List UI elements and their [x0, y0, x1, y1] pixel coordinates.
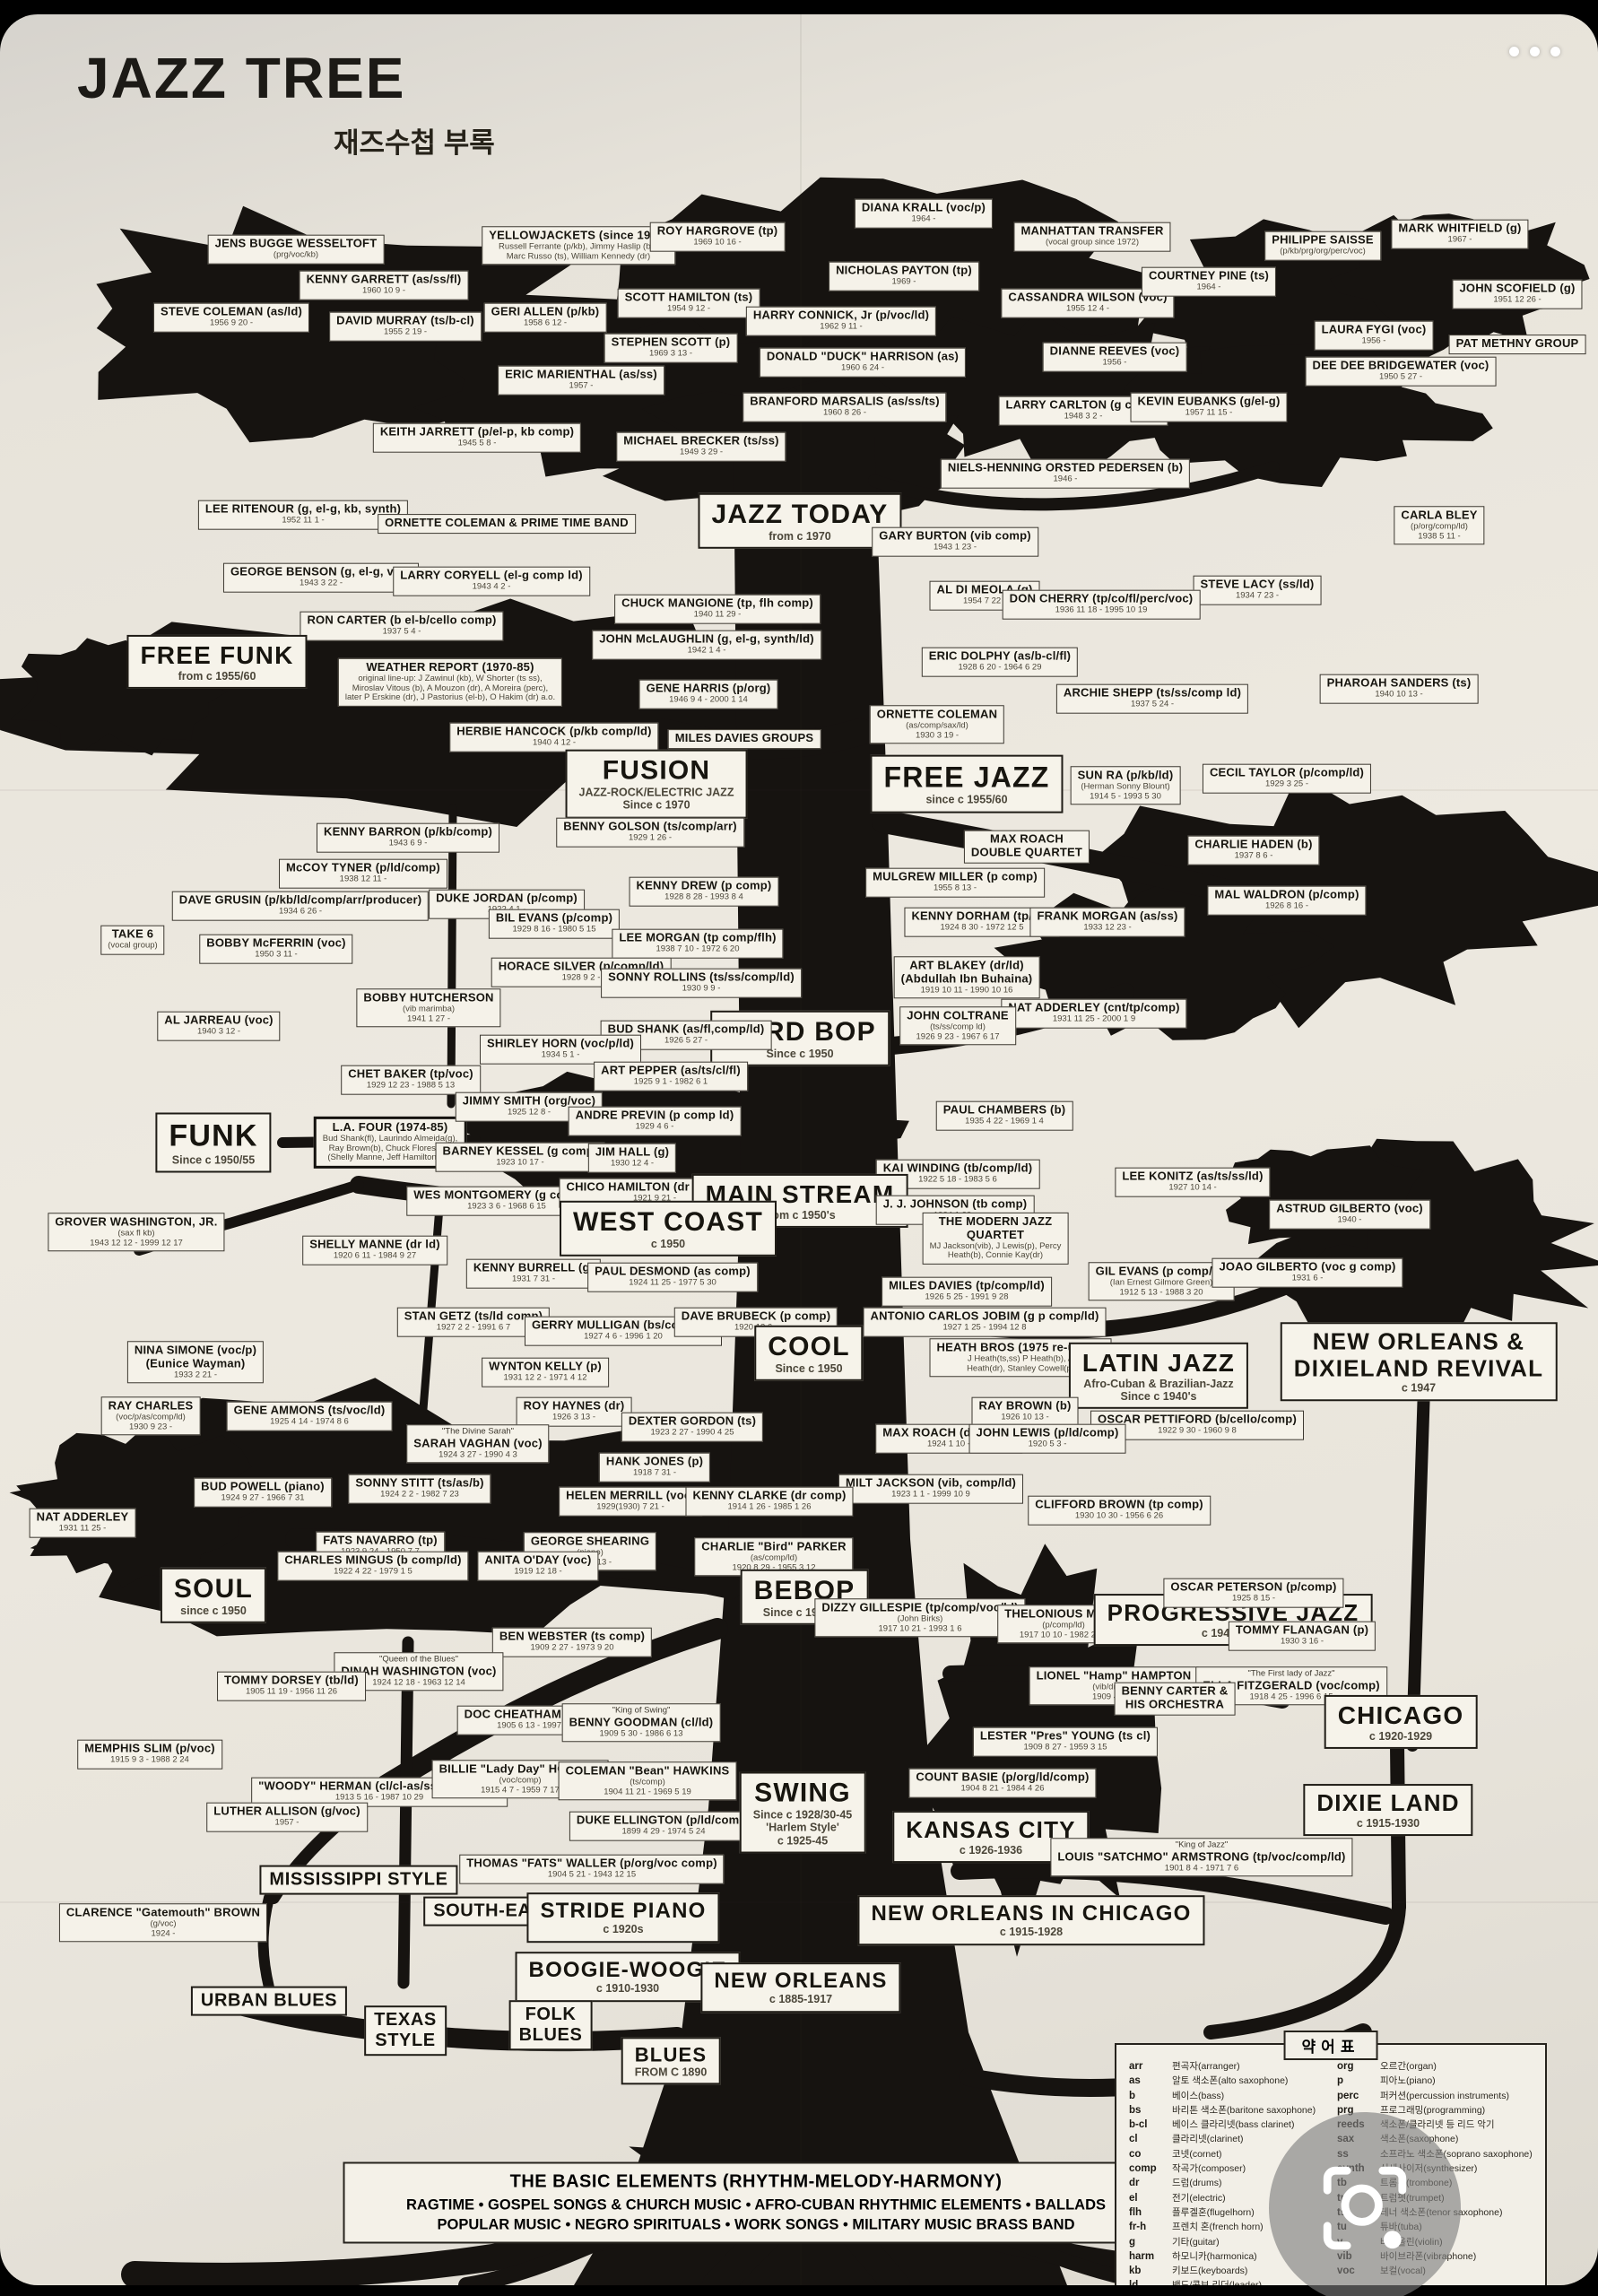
legend-row: p피아노(piano) [1337, 2074, 1533, 2088]
artist-label: PHILIPPE SAISSE(p/kb/prg/org/perc/voc) [1264, 231, 1381, 261]
lens-search-icon [1316, 2159, 1414, 2257]
artist-label: ANDRE PREVIN (p comp ld)1929 4 6 - [569, 1107, 742, 1136]
artist-label: DEXTER GORDON (ts)1923 2 27 - 1990 4 25 [621, 1413, 763, 1442]
artist-label: AL JARREAU (voc)1940 3 12 - [157, 1012, 280, 1041]
poster-photo: JAZZ TREE 재즈수첩 부록 JENS BUGGE WESSELTOFT(… [0, 14, 1598, 2285]
artist-label: PAT METHNY GROUP [1449, 335, 1586, 354]
artist-label: HELEN MERRILL (voc)1929(1930) 7 21 - [559, 1487, 702, 1517]
style-label: LATIN JAZZAfro-Cuban & Brazilian-JazzSin… [1069, 1343, 1248, 1409]
poster-stage: JAZZ TREE 재즈수첩 부록 JENS BUGGE WESSELTOFT(… [0, 14, 1598, 2285]
style-label: URBAN BLUES [191, 1987, 347, 2016]
artist-label: OSCAR PETERSON (p/comp)1925 8 15 - [1163, 1578, 1343, 1608]
artist-label: ANTONIO CARLOS JOBIM (g p comp/ld)1927 1… [864, 1308, 1107, 1337]
legend-row: org오르간(organ) [1337, 2059, 1533, 2074]
style-label: FUSIONJAZZ-ROCK/ELECTRIC JAZZSince c 197… [566, 750, 748, 819]
artist-label: ANITA O'DAY (voc)1919 12 18 - [477, 1552, 598, 1581]
artist-label: LARRY CORYELL (el-g comp ld)1943 4 2 - [393, 567, 590, 596]
artist-label: DONALD "DUCK" HARRISON (as)1960 6 24 - [760, 348, 966, 378]
artist-label: KENNY DREW (p comp)1928 8 28 - 1993 8 4 [630, 877, 779, 907]
artist-label: COURTNEY PINE (ts)1964 - [1142, 267, 1276, 297]
style-label: CHICAGOc 1920-1929 [1324, 1695, 1478, 1749]
app-screen: JAZZ TREE 재즈수첩 부록 JENS BUGGE WESSELTOFT(… [0, 0, 1598, 2296]
artist-label: CECIL TAYLOR (p/comp/ld)1929 3 25 - [1203, 764, 1371, 794]
artist-label: GROVER WASHINGTON, JR.(sax fl kb)1943 12… [48, 1213, 224, 1251]
artist-label: MICHAEL BRECKER (ts/ss)1949 3 29 - [616, 432, 786, 462]
artist-label: LUTHER ALLISON (g/voc)1957 - [206, 1803, 368, 1832]
artist-label: FRANK MORGAN (as/ss)1933 12 23 - [1029, 908, 1185, 937]
style-label: NEW ORLEANSc 1885-1917 [700, 1962, 900, 2013]
artist-label: GEORGE BENSON (g, el-g, voc)1943 3 22 - [223, 563, 419, 593]
artist-label: McCOY TYNER (p/ld/comp)1938 12 11 - [279, 859, 447, 889]
artist-label: MEMPHIS SLIM (p/voc)1915 9 3 - 1988 2 24 [77, 1740, 222, 1770]
style-label: FREE JAZZsince c 1955/60 [870, 755, 1063, 813]
style-label: FOLKBLUES [509, 2000, 593, 2050]
artist-label: RON CARTER (b el-b/cello comp)1937 5 4 - [300, 612, 503, 641]
artist-label: CARLA BLEY(p/org/comp/ld)1938 5 11 - [1394, 506, 1484, 544]
style-label: SOULsince c 1950 [161, 1568, 266, 1623]
style-label: TEXASSTYLE [364, 2005, 447, 2056]
artist-label: LEE KONITZ (as/ts/ss/ld)1927 10 14 - [1115, 1168, 1270, 1197]
artist-label: NIELS-HENNING ORSTED PEDERSEN (b)1946 - [941, 459, 1190, 489]
artist-label: TAKE 6(vocal group) [100, 926, 164, 955]
artist-label: CLARENCE "Gatemouth" BROWN(g/voc)1924 - [59, 1903, 267, 1942]
artist-label: BEN WEBSTER (ts comp)1909 2 27 - 1973 9 … [492, 1628, 652, 1657]
basic-elements-line2: RAGTIME • GOSPEL SONGS & CHURCH MUSIC • … [351, 2197, 1162, 2214]
artist-label: KENNY BURRELL (g)1931 7 31 - [466, 1259, 601, 1289]
legend-title: 약어표 [1284, 2031, 1378, 2060]
artist-label: TOMMY DORSEY (tb/ld)1905 11 19 - 1956 11… [217, 1672, 366, 1701]
artist-label: "The Divine Sarah"SARAH VAGHAN (voc)1924… [406, 1424, 549, 1463]
more-menu-icon[interactable] [1509, 47, 1560, 57]
artist-label: NINA SIMONE (voc/p)(Eunice Wayman)1933 2… [127, 1341, 264, 1383]
artist-label: MILES DAVIES (tp/comp/ld)1926 5 25 - 199… [882, 1277, 1052, 1307]
artist-label: JOHN SCOFIELD (g)1951 12 26 - [1452, 280, 1582, 309]
artist-label: JOHN COLTRANE(ts/ss/comp ld)1926 9 23 - … [899, 1006, 1016, 1045]
artist-label: JENS BUGGE WESSELTOFT(prg/voc/kb) [208, 235, 385, 265]
legend-row: b베이스(bass) [1129, 2089, 1324, 2103]
artist-label: LESTER "Pres" YOUNG (ts cl)1909 8 27 - 1… [973, 1727, 1158, 1757]
artist-label: JIM HALL (g)1930 12 4 - [588, 1144, 676, 1173]
artist-label: BOBBY McFERRIN (voc)1950 3 11 - [199, 935, 352, 964]
artist-label: CLIFFORD BROWN (tp comp)1930 10 30 - 195… [1028, 1496, 1211, 1526]
artist-label: NICHOLAS PAYTON (tp)1969 - [829, 262, 979, 291]
artist-label: HERBIE HANCOCK (p/kb comp/ld)1940 4 12 - [449, 723, 658, 752]
legend-row: bs바리톤 색소폰(baritone saxophone) [1129, 2103, 1324, 2118]
style-label: NEW ORLEANS &DIXIELAND REVIVALc 1947 [1281, 1322, 1558, 1401]
artist-label: JOHN LEWIS (p/ld/comp)1920 5 3 - [969, 1424, 1126, 1454]
artist-label: ORNETTE COLEMAN(as/comp/sax/ld)1930 3 19… [870, 705, 1004, 744]
artist-label: ERIC DOLPHY (as/b-cl/fl)1928 6 20 - 1964… [922, 648, 1078, 677]
artist-label: ASTRUD GILBERTO (voc)1940 - [1269, 1200, 1430, 1230]
style-label: WEST COASTc 1950 [560, 1201, 777, 1257]
artist-label: CHARLIE HADEN (b)1937 8 6 - [1187, 836, 1319, 865]
artist-label: WEATHER REPORT (1970-85)original line-up… [338, 658, 562, 707]
artist-label: CHET BAKER (tp/voc)1929 12 23 - 1988 5 1… [341, 1065, 481, 1095]
artist-label: KENNY CLARKE (dr comp)1914 1 26 - 1985 1… [685, 1487, 853, 1517]
artist-label: BRANFORD MARSALIS (as/ss/ts)1960 8 26 - [743, 393, 946, 422]
artist-label: STEPHEN SCOTT (p)1969 3 13 - [604, 334, 738, 363]
basic-elements-title: THE BASIC ELEMENTS (RHYTHM-MELODY-HARMON… [351, 2172, 1162, 2193]
artist-label: KENNY GARRETT (as/ss/fl)1960 10 9 - [300, 271, 469, 300]
legend-row: b-cl베이스 클라리넷(bass clarinet) [1129, 2118, 1324, 2132]
artist-label: MARK WHITFIELD (g)1967 - [1391, 220, 1528, 249]
artist-label: ERIC MARIENTHAL (as/ss)1957 - [498, 366, 664, 396]
artist-label: RAY CHARLES(voc/p/as/comp/ld)1930 9 23 - [101, 1396, 201, 1435]
artist-label: DON CHERRY (tp/co/fl/perc/voc)1936 11 18… [1003, 590, 1201, 620]
artist-label: SUN RA (p/kb/ld)(Herman Sonny Blount)191… [1071, 766, 1181, 804]
artist-label: HANK JONES (p)1918 7 31 - [599, 1453, 710, 1483]
artist-label: BIL EVANS (p/comp)1929 8 16 - 1980 5 15 [489, 909, 620, 939]
artist-label: BOBBY HUTCHERSON(vib marimba)1941 1 27 - [356, 988, 500, 1027]
style-label: FUNKSince c 1950/55 [155, 1113, 271, 1173]
artist-label: CHUCK MANGIONE (tp, flh comp)1940 11 29 … [614, 595, 821, 624]
artist-label: STEVE LACY (ss/ld)1934 7 23 - [1194, 576, 1322, 605]
artist-label: BENNY CARTER &HIS ORCHESTRA [1115, 1683, 1236, 1716]
legend-row: ld밴드/콤보 리더(leader) [1129, 2278, 1324, 2285]
artist-label: YELLOWJACKETS (since 1981)Russell Ferran… [482, 226, 675, 265]
style-label: NEW ORLEANS IN CHICAGOc 1915-1928 [857, 1895, 1204, 1945]
artist-label: BARNEY KESSEL (g comp)1923 10 17 - [436, 1143, 605, 1172]
artist-label: "King of Swing"BENNY GOODMAN (cl/ld)1909… [562, 1703, 721, 1742]
style-label: BLUESFROM C 1890 [621, 2037, 721, 2084]
artist-label: DIANNE REEVES (voc)1956 - [1043, 343, 1187, 372]
artist-label: SONNY STITT (ts/as/b)1924 2 2 - 1982 7 2… [348, 1474, 491, 1504]
artist-label: PAUL DESMOND (as comp)1924 11 25 - 1977 … [587, 1263, 758, 1292]
artist-label: NAT ADDERLEY (cnt/tp/comp)1931 11 25 - 2… [1001, 999, 1186, 1029]
artist-label: DIANA KRALL (voc/p)1964 - [855, 199, 993, 229]
style-label: SWINGSince c 1928/30-45'Harlem Style'c 1… [740, 1772, 866, 1854]
artist-label: DIZZY GILLESPIE (tp/comp/voc/ld)(John Bi… [814, 1598, 1025, 1637]
style-label: STRIDE PIANOc 1920s [526, 1892, 719, 1943]
legend-row: perc퍼커션(percussion instruments) [1337, 2089, 1533, 2103]
artist-label: HARRY CONNICK, Jr (p/voc/ld)1962 9 11 - [746, 307, 936, 336]
artist-label: GENE HARRIS (p/org)1946 9 4 - 2000 1 14 [639, 680, 778, 709]
artist-label: KENNY BARRON (p/kb/comp)1943 6 9 - [317, 823, 499, 853]
artist-label: STEVE COLEMAN (as/ld)1956 9 20 - [153, 303, 309, 333]
style-label: DIXIE LANDc 1915-1930 [1303, 1784, 1472, 1836]
artist-label: ART PEPPER (as/ts/cl/fl)1925 9 1 - 1982 … [594, 1062, 748, 1091]
artist-label: DEE DEE BRIDGEWATER (voc)1950 5 27 - [1306, 357, 1497, 387]
artist-label: LEE MORGAN (tp comp/flh)1938 7 10 - 1972… [612, 929, 783, 959]
artist-label: KEITH JARRETT (p/el-p, kb comp)1945 5 8 … [373, 423, 581, 453]
artist-label: COLEMAN "Bean" HAWKINS(ts/comp)1904 11 2… [559, 1761, 737, 1800]
artist-label: TOMMY FLANAGAN (p)1930 3 16 - [1229, 1622, 1376, 1651]
artist-label: MAL WALDRON (p/comp)1926 8 16 - [1207, 886, 1366, 916]
legend-row: as알토 색소폰(alto saxophone) [1129, 2074, 1324, 2088]
artist-label: SHELLY MANNE (dr ld)1920 6 11 - 1984 9 2… [302, 1236, 447, 1265]
artist-label: KEVIN EUBANKS (g/el-g)1957 11 15 - [1131, 393, 1288, 422]
artist-label: BENNY GOLSON (ts/comp/arr)1929 1 26 - [556, 818, 744, 848]
artist-label: BUD POWELL (piano)1924 9 27 - 1966 7 31 [194, 1478, 332, 1508]
artist-label: CHARLES MINGUS (b comp/ld)1922 4 22 - 19… [277, 1552, 468, 1581]
artist-label: GENE AMMONS (ts/voc/ld)1925 4 14 - 1974 … [227, 1402, 393, 1431]
artist-label: SONNY ROLLINS (ts/ss/comp/ld)1930 9 9 - [601, 969, 802, 998]
poster-title: JAZZ TREE [77, 45, 405, 111]
artist-label: PAUL CHAMBERS (b)1935 4 22 - 1969 1 4 [936, 1101, 1073, 1131]
style-label: COOLSince c 1950 [754, 1326, 863, 1381]
style-label: FREE FUNKfrom c 1955/60 [126, 635, 307, 689]
artist-label: JOAO GILBERTO (voc g comp)1931 6 - [1212, 1258, 1403, 1288]
basic-elements-line3: POPULAR MUSIC • NEGRO SPIRITUALS • WORK … [351, 2217, 1162, 2234]
artist-label: MULGREW MILLER (p comp)1955 8 13 - [865, 868, 1045, 898]
style-label: MISSISSIPPI STYLE [259, 1865, 457, 1895]
artist-label: LAURA FYGI (voc)1956 - [1315, 321, 1434, 351]
artist-label: ROY HAYNES (dr)1926 3 13 - [517, 1397, 632, 1427]
artist-label: DUKE ELLINGTON (p/ld/comp)1899 4 29 - 19… [569, 1812, 758, 1841]
artist-label: WYNTON KELLY (p)1931 12 2 - 1971 4 12 [482, 1358, 609, 1387]
artist-label: MILES DAVIES GROUPS [668, 729, 821, 749]
artist-label: PHAROAH SANDERS (ts)1940 10 13 - [1320, 674, 1479, 704]
lens-button[interactable] [1269, 2112, 1461, 2296]
artist-label: ORNETTE COLEMAN & PRIME TIME BAND [378, 514, 636, 534]
artist-label: ARCHIE SHEPP (ts/ss/comp ld)1937 5 24 - [1056, 684, 1248, 714]
legend-row: arr편곡자(arranger) [1129, 2059, 1324, 2074]
basic-elements-box: THE BASIC ELEMENTS (RHYTHM-MELODY-HARMON… [343, 2162, 1169, 2244]
artist-label: COUNT BASIE (p/org/ld/comp)1904 8 21 - 1… [908, 1769, 1096, 1798]
artist-label: ROY HARGROVE (tp)1969 10 16 - [650, 222, 786, 252]
artist-label: LEE RITENOUR (g, el-g, kb, synth)1952 11… [198, 500, 408, 530]
artist-label: DAVE GRUSIN (p/kb/ld/comp/arr/producer)1… [172, 891, 429, 921]
poster-subtitle-korean: 재즈수첩 부록 [334, 120, 495, 161]
artist-label: JOHN McLAUGHLIN (g, el-g, synth/ld)1942 … [592, 631, 821, 660]
artist-label: MILT JACKSON (vib, comp/ld)1923 1 1 - 19… [838, 1474, 1023, 1504]
artist-label: NAT ADDERLEY1931 11 25 - [30, 1509, 136, 1538]
artist-label: "King of Jazz"LOUIS "SATCHMO" ARMSTRONG … [1050, 1838, 1352, 1876]
artist-label: DAVID MURRAY (ts/b-cl)1955 2 19 - [329, 312, 482, 342]
artist-label: THOMAS "FATS" WALLER (p/org/voc comp)190… [459, 1855, 724, 1884]
artist-label: MAX ROACHDOUBLE QUARTET [964, 831, 1090, 864]
artist-label: GERI ALLEN (p/kb)1958 6 12 - [484, 303, 607, 333]
artist-label: RAY BROWN (b)1926 10 13 - [972, 1397, 1079, 1427]
artist-label: MANHATTAN TRANSFER(vocal group since 197… [1013, 222, 1170, 252]
artist-label: SCOTT HAMILTON (ts)1954 9 12 - [618, 289, 760, 318]
artist-label: THE MODERN JAZZQUARTETMJ Jackson(vib), J… [923, 1213, 1069, 1265]
artist-label: ART BLAKEY (dr/ld)(Abdullah Ibn Buhaina)… [894, 956, 1040, 998]
artist-label: GARY BURTON (vib comp)1943 1 23 - [872, 527, 1038, 557]
artist-label: SHIRLEY HORN (voc/p/ld)1934 5 1 - [480, 1035, 641, 1065]
